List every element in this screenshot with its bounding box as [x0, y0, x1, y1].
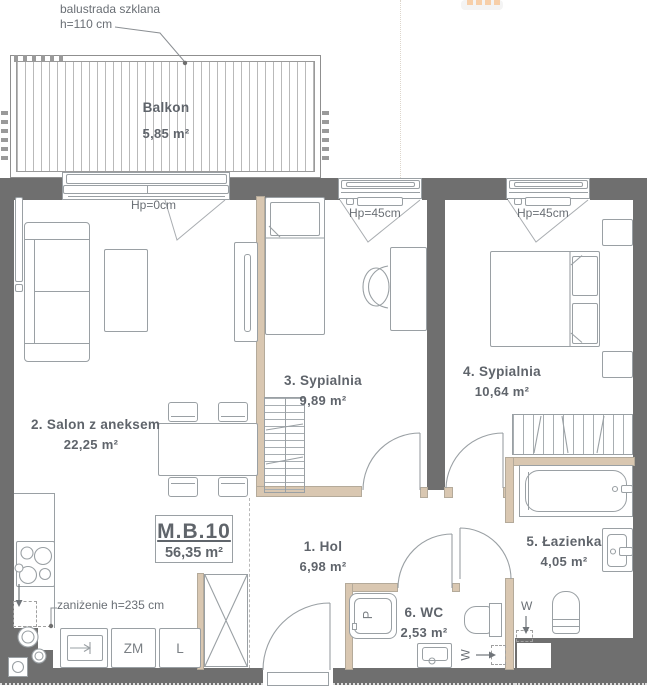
sill-label-bedroom3: Hp=45cm: [349, 206, 401, 220]
door-wc: [398, 534, 452, 588]
plan-linework: [0, 0, 647, 700]
vent-label-wc: W: [459, 649, 473, 660]
unit-id: M.B.10: [156, 519, 232, 544]
burner: [35, 548, 52, 565]
stove-knob: [15, 564, 23, 572]
wc-sink-drain: [429, 658, 435, 664]
unit-area: 56,35 m²: [156, 545, 232, 561]
bedroom3-name: 3. Sypialnia: [282, 371, 364, 391]
wardrobe4-hatch-diagonals: [534, 416, 604, 453]
wardrobe-x-cross: [205, 575, 247, 666]
bathroom-sink-drain: [611, 549, 616, 554]
desk-chair-back: [369, 266, 389, 308]
arrowhead: [523, 627, 530, 634]
wc-name: 6. WC: [396, 603, 452, 623]
unit-card: M.B.10 56,35 m²: [155, 515, 233, 563]
bedroom3-label: 3. Sypialnia 9,89 m²: [282, 371, 364, 411]
desk-chair-seat: [363, 268, 389, 306]
salon-area: 22,25 m²: [31, 435, 151, 455]
floor-plan: Balkon 5,85 m² balustrada szklana h=110 …: [0, 0, 647, 700]
arrows: [16, 584, 530, 659]
sill-label-bedroom4: Hp=45cm: [517, 206, 569, 220]
hall-label: 1. Hol 6,98 m²: [293, 537, 353, 577]
door-entrance: [263, 603, 330, 670]
wc-area: 2,53 m²: [396, 623, 452, 643]
lowered-ceiling-label: zaniżenie h=235 cm: [57, 598, 164, 612]
bathroom-area: 4,05 m²: [524, 552, 604, 572]
bedroom4-label: 4. Sypialnia 10,64 m²: [449, 362, 555, 402]
bed4-headboard-folds: [570, 252, 582, 346]
burner: [21, 547, 33, 559]
bedroom3-area: 9,89 m²: [282, 391, 364, 411]
bathtub-drain: [613, 487, 618, 492]
wc-label: 6. WC 2,53 m²: [396, 603, 452, 643]
arrowhead: [489, 652, 496, 659]
burner: [40, 569, 51, 580]
bathroom-label: 5. Łazienka 4,05 m²: [524, 532, 604, 572]
bedroom4-area: 10,64 m²: [449, 382, 555, 402]
salon-name: 2. Salon z aneksem: [31, 415, 151, 435]
shaft-pipe-inner: [35, 652, 43, 660]
wardrobe3-hatch-diagonals: [266, 424, 303, 464]
bedroom4-name: 4. Sypialnia: [449, 362, 555, 382]
kitchen-sink-arrow: [70, 642, 90, 654]
hall-area: 6,98 m²: [293, 557, 353, 577]
sill-label-salon: Hp=0cm: [131, 198, 176, 212]
bed3-blanket-fold: [265, 226, 324, 238]
door-bedroom3: [363, 433, 420, 490]
vent-label-bathroom: W: [521, 599, 532, 613]
door-bathroom: [460, 528, 511, 579]
bathroom-name: 5. Łazienka: [524, 532, 604, 552]
shaft-pipe-inner: [22, 631, 34, 643]
corner-installations: [13, 627, 47, 673]
arrowhead: [16, 600, 23, 607]
leader-dot: [49, 624, 53, 628]
salon-label: 2. Salon z aneksem 22,25 m²: [31, 415, 151, 455]
stove-burners: [15, 547, 52, 584]
leader-dot: [183, 61, 187, 65]
leader-balustrade: [115, 27, 184, 61]
shaft-pipe: [13, 662, 24, 673]
door-bedroom4: [446, 433, 503, 488]
hall-name: 1. Hol: [293, 537, 353, 557]
